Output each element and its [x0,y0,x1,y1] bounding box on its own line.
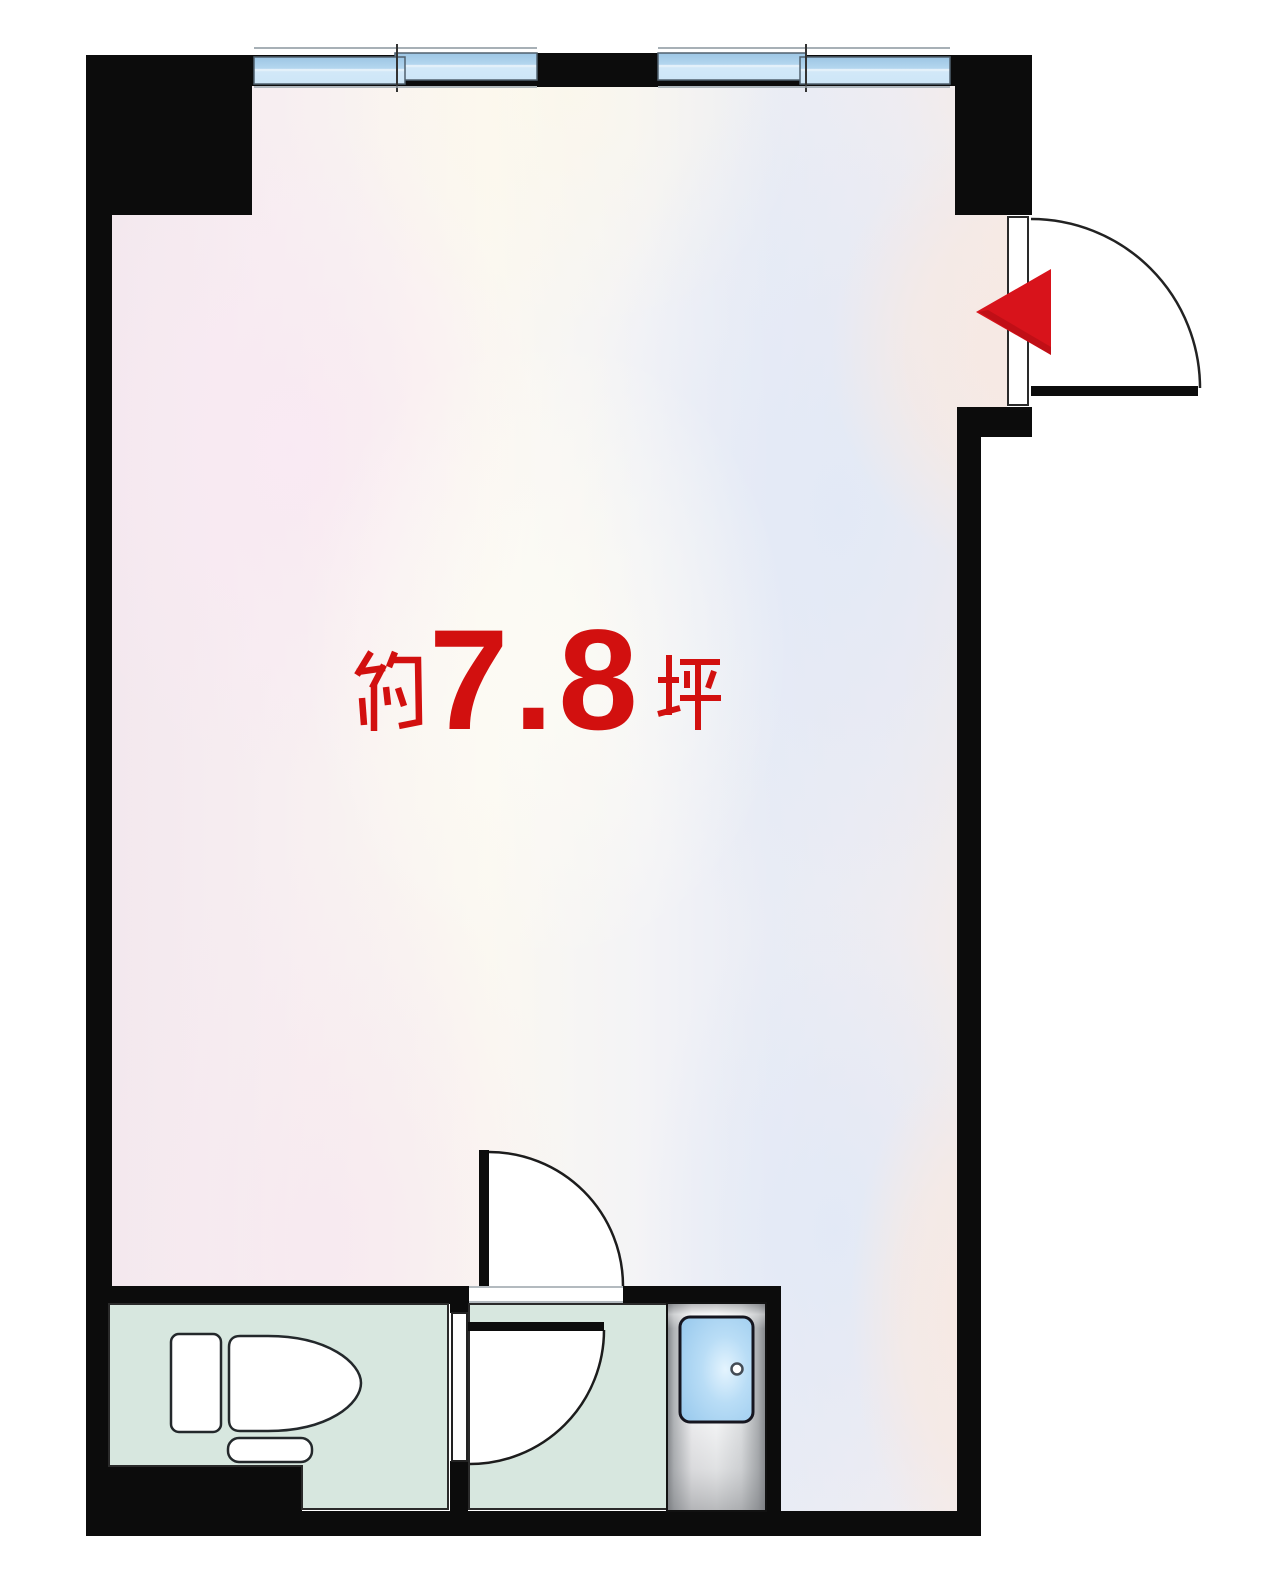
svg-text:7.8: 7.8 [429,601,643,760]
